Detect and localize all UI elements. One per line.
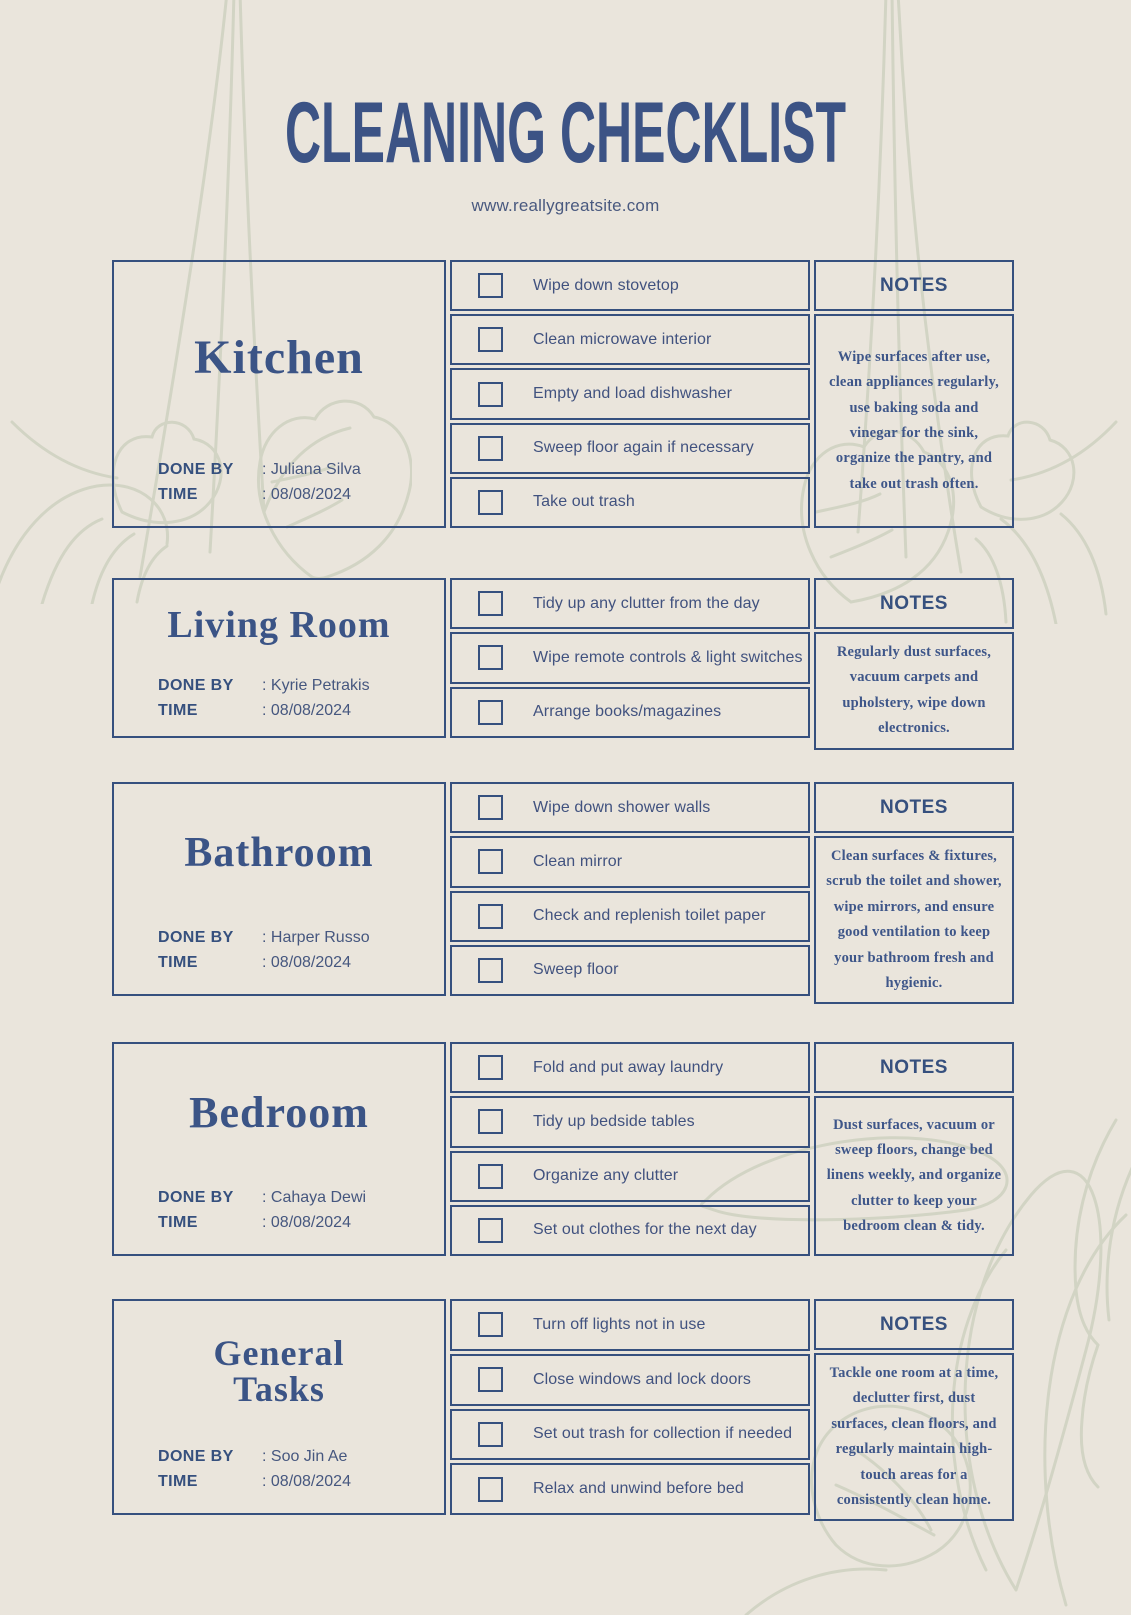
section-living-room: Living RoomDONE BY: Kyrie PetrakisTIME: … xyxy=(112,578,1014,738)
section-panel: BathroomDONE BY: Harper RussoTIME: 08/08… xyxy=(112,782,446,996)
task-label: Set out clothes for the next day xyxy=(533,1221,757,1239)
task-label: Relax and unwind before bed xyxy=(533,1480,744,1498)
notes-column: NOTESTackle one room at a time, declutte… xyxy=(814,1299,1014,1515)
task-list: Fold and put away laundryTidy up bedside… xyxy=(450,1042,810,1256)
task-row: Clean microwave interior xyxy=(450,314,810,365)
task-row: Sweep floor again if necessary xyxy=(450,423,810,474)
done-by-value: : Soo Jin Ae xyxy=(262,1448,347,1466)
task-checkbox[interactable] xyxy=(478,700,503,725)
time-label: TIME xyxy=(158,954,262,972)
task-row: Clean mirror xyxy=(450,836,810,887)
task-checkbox[interactable] xyxy=(478,904,503,929)
task-checkbox[interactable] xyxy=(478,645,503,670)
task-label: Check and replenish toilet paper xyxy=(533,907,766,925)
section-title-bathroom: Bathroom xyxy=(184,832,373,874)
time-row: TIME: 08/08/2024 xyxy=(158,486,434,504)
done-by-value: : Juliana Silva xyxy=(262,461,361,479)
done-by-label: DONE BY xyxy=(158,929,262,947)
notes-column: NOTESDust surfaces, vacuum or sweep floo… xyxy=(814,1042,1014,1256)
section-info: DONE BY: Juliana SilvaTIME: 08/08/2024 xyxy=(114,454,444,526)
notes-header: NOTES xyxy=(814,782,1014,833)
task-row: Relax and unwind before bed xyxy=(450,1463,810,1515)
section-title-wrap: Bedroom xyxy=(114,1044,444,1182)
notes-text: Wipe surfaces after use, clean appliance… xyxy=(826,345,1002,497)
task-list: Wipe down stovetopClean microwave interi… xyxy=(450,260,810,528)
notes-text: Regularly dust surfaces, vacuum carpets … xyxy=(826,640,1002,742)
section-title-kitchen: Kitchen xyxy=(194,334,364,382)
notes-header-label: NOTES xyxy=(880,1314,948,1336)
task-checkbox[interactable] xyxy=(478,1422,503,1447)
done-by-label: DONE BY xyxy=(158,461,262,479)
task-label: Organize any clutter xyxy=(533,1167,678,1185)
task-list: Wipe down shower wallsClean mirrorCheck … xyxy=(450,782,810,996)
task-row: Wipe remote controls & light switches xyxy=(450,632,810,683)
section-panel: General TasksDONE BY: Soo Jin AeTIME: 08… xyxy=(112,1299,446,1515)
time-value: : 08/08/2024 xyxy=(262,954,351,972)
task-label: Tidy up bedside tables xyxy=(533,1113,695,1131)
notes-header-label: NOTES xyxy=(880,1057,948,1079)
section-title-wrap: Living Room xyxy=(114,580,444,670)
time-value: : 08/08/2024 xyxy=(262,486,351,504)
notes-header: NOTES xyxy=(814,578,1014,629)
done-by-row: DONE BY: Soo Jin Ae xyxy=(158,1448,434,1466)
task-label: Sweep floor xyxy=(533,961,619,979)
section-panel: Living RoomDONE BY: Kyrie PetrakisTIME: … xyxy=(112,578,446,738)
notes-header: NOTES xyxy=(814,1299,1014,1350)
section-title-bedroom: Bedroom xyxy=(189,1091,369,1135)
section-bedroom: BedroomDONE BY: Cahaya DewiTIME: 08/08/2… xyxy=(112,1042,1014,1256)
task-label: Arrange books/magazines xyxy=(533,703,721,721)
task-checkbox[interactable] xyxy=(478,382,503,407)
notes-body: Tackle one room at a time, declutter fir… xyxy=(814,1353,1014,1521)
notes-text: Clean surfaces & fixtures, scrub the toi… xyxy=(826,844,1002,996)
notes-column: NOTESClean surfaces & fixtures, scrub th… xyxy=(814,782,1014,996)
notes-column: NOTESWipe surfaces after use, clean appl… xyxy=(814,260,1014,528)
done-by-label: DONE BY xyxy=(158,677,262,695)
task-label: Clean mirror xyxy=(533,853,622,871)
task-label: Fold and put away laundry xyxy=(533,1059,723,1077)
notes-text: Dust surfaces, vacuum or sweep floors, c… xyxy=(826,1113,1002,1240)
time-value: : 08/08/2024 xyxy=(262,1214,351,1232)
section-info: DONE BY: Harper RussoTIME: 08/08/2024 xyxy=(114,922,444,994)
task-list: Tidy up any clutter from the dayWipe rem… xyxy=(450,578,810,738)
page-title: CLEANING CHECKLIST xyxy=(285,90,846,176)
task-label: Wipe remote controls & light switches xyxy=(533,649,803,667)
done-by-row: DONE BY: Juliana Silva xyxy=(158,461,434,479)
section-title-living-room: Living Room xyxy=(167,606,390,644)
done-by-value: : Kyrie Petrakis xyxy=(262,677,370,695)
task-checkbox[interactable] xyxy=(478,490,503,515)
section-panel: BedroomDONE BY: Cahaya DewiTIME: 08/08/2… xyxy=(112,1042,446,1256)
task-row: Tidy up any clutter from the day xyxy=(450,578,810,629)
notes-header: NOTES xyxy=(814,1042,1014,1093)
section-general-tasks: General TasksDONE BY: Soo Jin AeTIME: 08… xyxy=(112,1299,1014,1515)
notes-header-label: NOTES xyxy=(880,593,948,615)
task-checkbox[interactable] xyxy=(478,1164,503,1189)
task-checkbox[interactable] xyxy=(478,273,503,298)
task-row: Set out trash for collection if needed xyxy=(450,1409,810,1461)
done-by-value: : Cahaya Dewi xyxy=(262,1189,366,1207)
task-row: Set out clothes for the next day xyxy=(450,1205,810,1256)
task-checkbox[interactable] xyxy=(478,327,503,352)
task-label: Wipe down stovetop xyxy=(533,277,679,295)
section-info: DONE BY: Kyrie PetrakisTIME: 08/08/2024 xyxy=(114,670,444,736)
notes-body: Dust surfaces, vacuum or sweep floors, c… xyxy=(814,1096,1014,1256)
time-value: : 08/08/2024 xyxy=(262,702,351,720)
section-bathroom: BathroomDONE BY: Harper RussoTIME: 08/08… xyxy=(112,782,1014,996)
time-value: : 08/08/2024 xyxy=(262,1473,351,1491)
task-checkbox[interactable] xyxy=(478,1477,503,1502)
notes-text: Tackle one room at a time, declutter fir… xyxy=(826,1361,1002,1513)
done-by-row: DONE BY: Cahaya Dewi xyxy=(158,1189,434,1207)
page-header: CLEANING CHECKLIST www.reallygreatsite.c… xyxy=(0,0,1131,216)
task-checkbox[interactable] xyxy=(478,958,503,983)
task-label: Set out trash for collection if needed xyxy=(533,1425,792,1443)
done-by-row: DONE BY: Kyrie Petrakis xyxy=(158,677,434,695)
notes-body: Regularly dust surfaces, vacuum carpets … xyxy=(814,632,1014,750)
done-by-value: : Harper Russo xyxy=(262,929,370,947)
notes-header-label: NOTES xyxy=(880,275,948,297)
task-row: Fold and put away laundry xyxy=(450,1042,810,1093)
task-label: Turn off lights not in use xyxy=(533,1316,705,1334)
task-checkbox[interactable] xyxy=(478,591,503,616)
time-label: TIME xyxy=(158,1214,262,1232)
section-title-wrap: Bathroom xyxy=(114,784,444,922)
notes-body: Wipe surfaces after use, clean appliance… xyxy=(814,314,1014,528)
task-row: Take out trash xyxy=(450,477,810,528)
time-label: TIME xyxy=(158,486,262,504)
task-checkbox[interactable] xyxy=(478,1218,503,1243)
task-row: Sweep floor xyxy=(450,945,810,996)
section-panel: KitchenDONE BY: Juliana SilvaTIME: 08/08… xyxy=(112,260,446,528)
time-row: TIME: 08/08/2024 xyxy=(158,1214,434,1232)
notes-header: NOTES xyxy=(814,260,1014,311)
task-label: Sweep floor again if necessary xyxy=(533,439,754,457)
task-label: Empty and load dishwasher xyxy=(533,385,732,403)
task-label: Close windows and lock doors xyxy=(533,1371,751,1389)
notes-column: NOTESRegularly dust surfaces, vacuum car… xyxy=(814,578,1014,738)
task-row: Turn off lights not in use xyxy=(450,1299,810,1351)
section-info: DONE BY: Cahaya DewiTIME: 08/08/2024 xyxy=(114,1182,444,1254)
task-checkbox[interactable] xyxy=(478,436,503,461)
task-row: Wipe down stovetop xyxy=(450,260,810,311)
task-checkbox[interactable] xyxy=(478,1367,503,1392)
time-label: TIME xyxy=(158,1473,262,1491)
task-row: Close windows and lock doors xyxy=(450,1354,810,1406)
section-title-wrap: General Tasks xyxy=(114,1301,444,1441)
section-title-wrap: Kitchen xyxy=(114,262,444,454)
notes-body: Clean surfaces & fixtures, scrub the toi… xyxy=(814,836,1014,1004)
done-by-row: DONE BY: Harper Russo xyxy=(158,929,434,947)
task-checkbox[interactable] xyxy=(478,1055,503,1080)
task-row: Empty and load dishwasher xyxy=(450,368,810,419)
task-row: Tidy up bedside tables xyxy=(450,1096,810,1147)
section-info: DONE BY: Soo Jin AeTIME: 08/08/2024 xyxy=(114,1441,444,1513)
sections-container: KitchenDONE BY: Juliana SilvaTIME: 08/08… xyxy=(112,260,1014,1515)
task-label: Clean microwave interior xyxy=(533,331,711,349)
task-checkbox[interactable] xyxy=(478,795,503,820)
task-row: Organize any clutter xyxy=(450,1151,810,1202)
time-row: TIME: 08/08/2024 xyxy=(158,954,434,972)
time-row: TIME: 08/08/2024 xyxy=(158,702,434,720)
task-label: Wipe down shower walls xyxy=(533,799,710,817)
task-label: Take out trash xyxy=(533,493,635,511)
done-by-label: DONE BY xyxy=(158,1189,262,1207)
task-checkbox[interactable] xyxy=(478,1109,503,1134)
time-row: TIME: 08/08/2024 xyxy=(158,1473,434,1491)
task-row: Check and replenish toilet paper xyxy=(450,891,810,942)
website-url: www.reallygreatsite.com xyxy=(0,196,1131,216)
task-row: Wipe down shower walls xyxy=(450,782,810,833)
time-label: TIME xyxy=(158,702,262,720)
task-row: Arrange books/magazines xyxy=(450,687,810,738)
section-kitchen: KitchenDONE BY: Juliana SilvaTIME: 08/08… xyxy=(112,260,1014,528)
task-checkbox[interactable] xyxy=(478,849,503,874)
task-list: Turn off lights not in useClose windows … xyxy=(450,1299,810,1515)
task-checkbox[interactable] xyxy=(478,1312,503,1337)
done-by-label: DONE BY xyxy=(158,1448,262,1466)
task-label: Tidy up any clutter from the day xyxy=(533,595,760,613)
notes-header-label: NOTES xyxy=(880,797,948,819)
section-title-general-tasks: General Tasks xyxy=(174,1335,384,1407)
